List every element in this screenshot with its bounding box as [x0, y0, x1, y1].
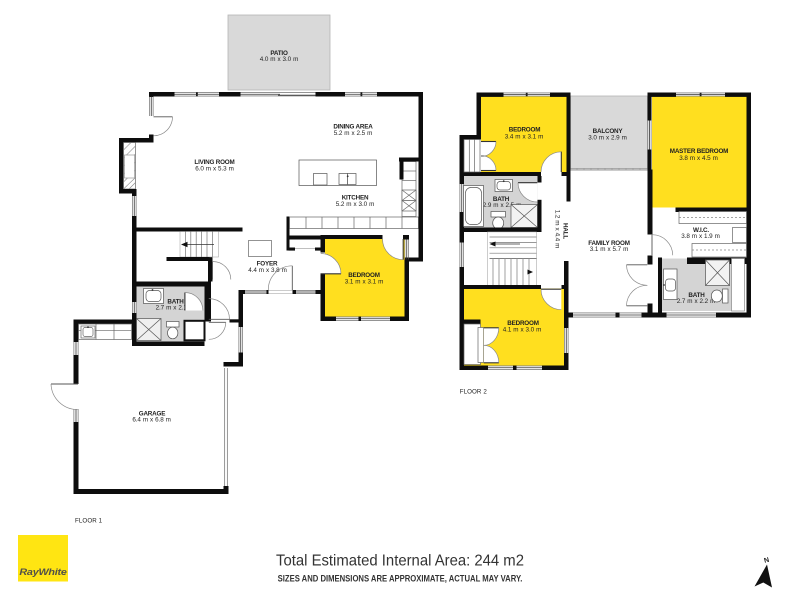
svg-text:MASTER BEDROOM: MASTER BEDROOM: [670, 148, 728, 155]
svg-text:1.2 m x 4.4 m: 1.2 m x 4.4 m: [554, 210, 561, 248]
svg-text:4.1 m x 3.0 m: 4.1 m x 3.0 m: [503, 326, 541, 333]
svg-text:3.4 m x 3.1 m: 3.4 m x 3.1 m: [505, 133, 543, 140]
svg-text:5.2 m x 3.0 m: 5.2 m x 3.0 m: [336, 201, 374, 208]
svg-text:3.1 m x 3.1 m: 3.1 m x 3.1 m: [345, 278, 383, 285]
svg-text:5.2 m x 2.5 m: 5.2 m x 2.5 m: [334, 130, 372, 137]
svg-text:3.8 m x 1.9 m: 3.8 m x 1.9 m: [681, 233, 719, 240]
svg-text:4.0 m x 3.0 m: 4.0 m x 3.0 m: [260, 56, 298, 63]
svg-text:2.7 m x 2.2 m: 2.7 m x 2.2 m: [677, 298, 715, 305]
svg-text:Total Estimated Internal Area:: Total Estimated Internal Area: 244 m2: [276, 552, 524, 570]
svg-text:6.4 m x 6.8 m: 6.4 m x 6.8 m: [132, 416, 170, 423]
svg-text:6.0 m x 5.3 m: 6.0 m x 5.3 m: [195, 166, 233, 173]
svg-text:HALL: HALL: [562, 223, 569, 239]
svg-text:SIZES AND DIMENSIONS ARE APPRO: SIZES AND DIMENSIONS ARE APPROXIMATE, AC…: [278, 573, 523, 584]
svg-text:3.0 m x 2.9 m: 3.0 m x 2.9 m: [588, 135, 626, 142]
svg-text:FLOOR 1: FLOOR 1: [75, 517, 103, 524]
svg-text:3.8 m x 4.5 m: 3.8 m x 4.5 m: [679, 155, 717, 162]
svg-text:3.1 m x 5.7 m: 3.1 m x 5.7 m: [590, 246, 628, 253]
svg-text:4.4 m x 3.8 m: 4.4 m x 3.8 m: [248, 267, 286, 274]
svg-text:FLOOR 2: FLOOR 2: [460, 388, 488, 395]
svg-text:RayWhite: RayWhite: [19, 568, 67, 578]
